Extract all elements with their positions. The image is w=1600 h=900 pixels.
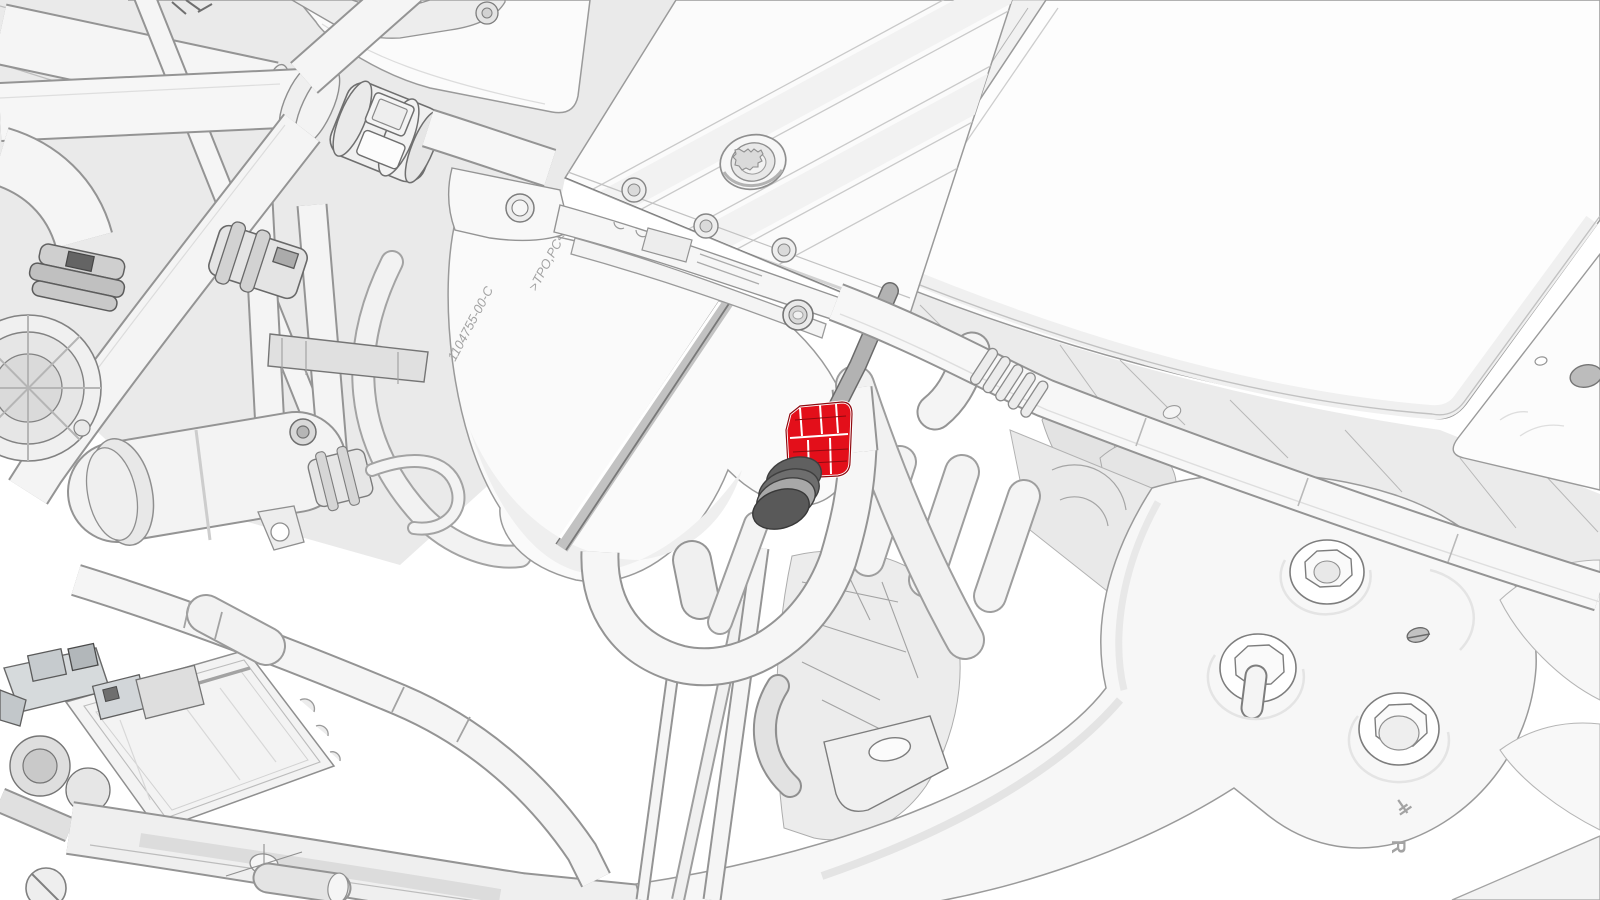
svg-text:R: R [1387,840,1408,854]
